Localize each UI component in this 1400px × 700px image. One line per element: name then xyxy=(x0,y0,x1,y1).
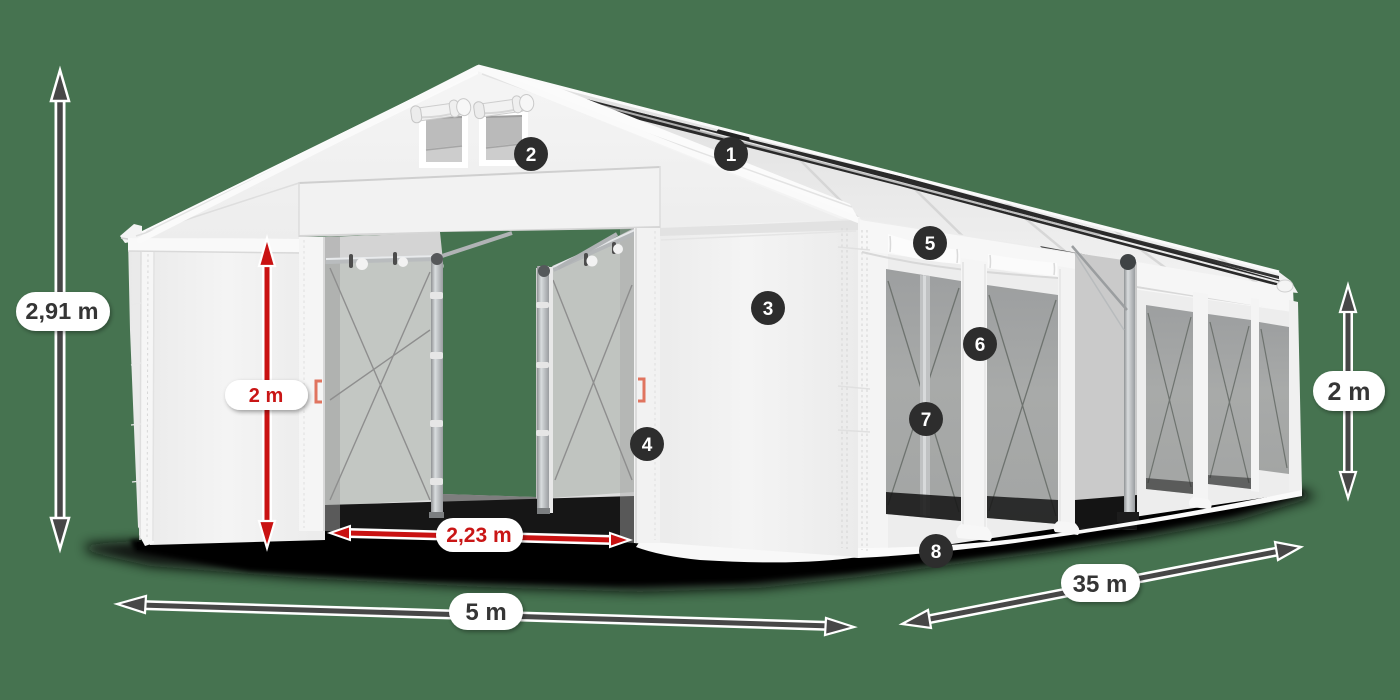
svg-text:3: 3 xyxy=(763,299,774,320)
svg-text:8: 8 xyxy=(931,542,942,563)
svg-text:7: 7 xyxy=(921,410,932,431)
svg-text:5 m: 5 m xyxy=(465,599,506,626)
svg-text:35 m: 35 m xyxy=(1073,571,1128,598)
svg-text:2 m: 2 m xyxy=(1327,378,1370,406)
svg-text:2,91 m: 2,91 m xyxy=(25,298,98,324)
svg-text:5: 5 xyxy=(925,234,936,255)
svg-text:4: 4 xyxy=(642,435,653,456)
svg-text:1: 1 xyxy=(726,145,737,166)
svg-text:2,23 m: 2,23 m xyxy=(446,524,511,547)
svg-text:2 m: 2 m xyxy=(249,385,283,407)
svg-text:2: 2 xyxy=(526,145,537,166)
svg-text:6: 6 xyxy=(975,335,986,356)
